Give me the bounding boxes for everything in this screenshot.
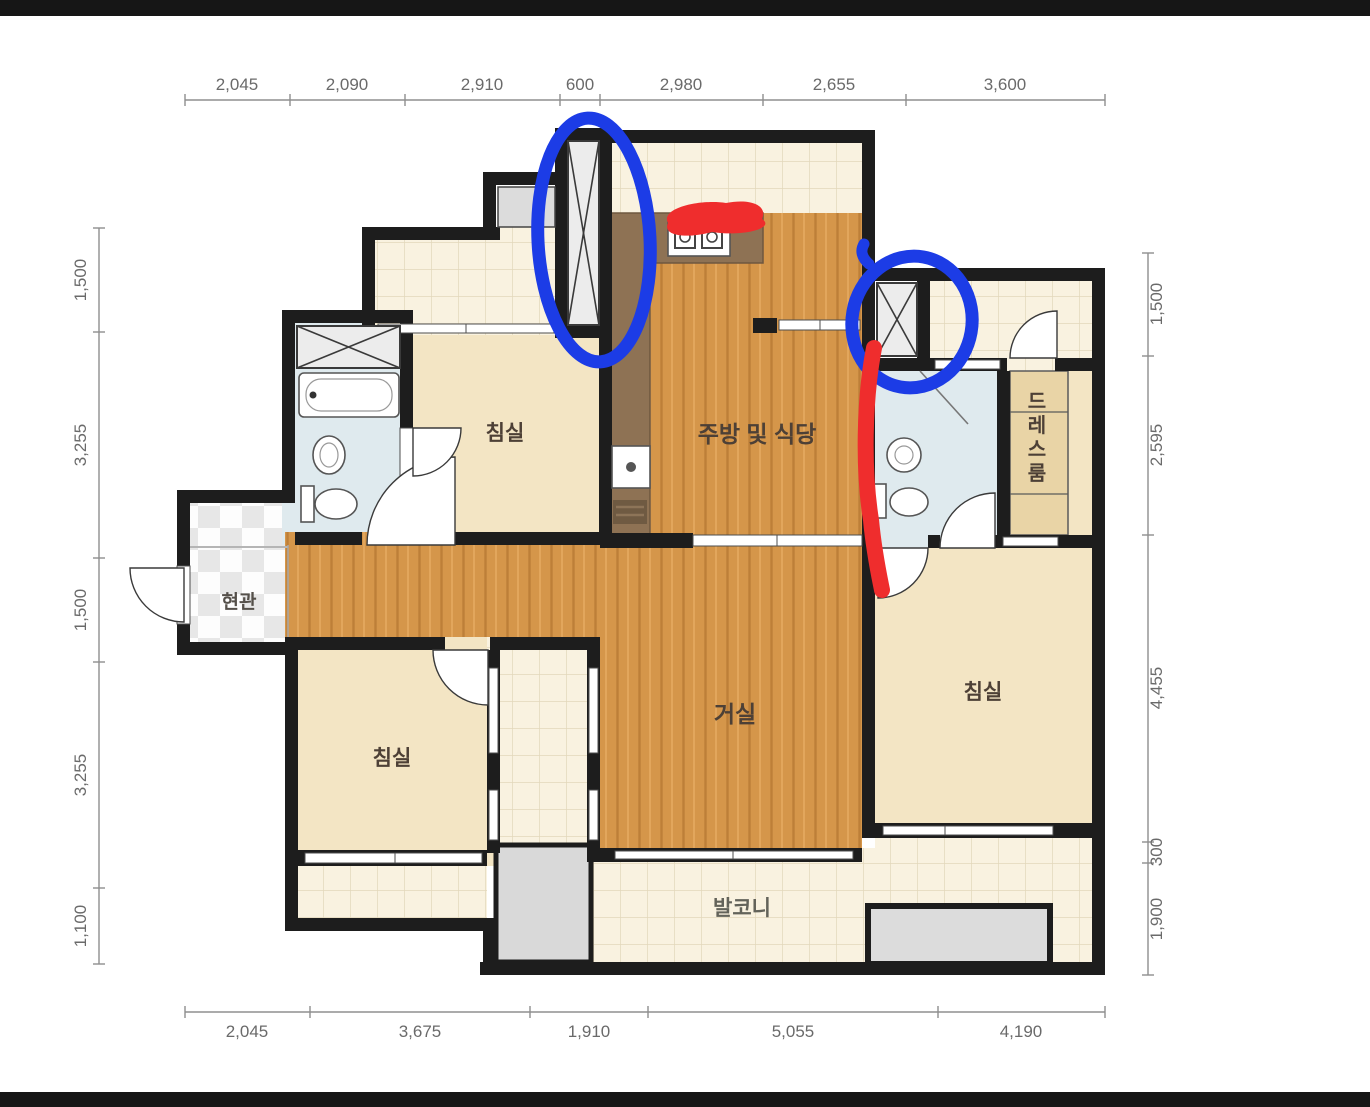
bedroom3-label: 침실: [373, 747, 412, 770]
dim-left-3: 1,500: [71, 589, 90, 632]
bedroom2-label: 침실: [964, 681, 1003, 704]
living-room-floor: [587, 532, 862, 862]
dim-top-3: 2,910: [461, 75, 504, 94]
top-black-bar: [0, 0, 1370, 16]
floor-plan: 침실 침실 침실 거실 주방 및 식당 발코니 현관 드레스룸 2,045 2,…: [0, 0, 1370, 1107]
duct-shaft-top-icon: [568, 141, 599, 325]
dim-top-7: 3,600: [984, 75, 1027, 94]
floor-plan-page: 침실 침실 침실 거실 주방 및 식당 발코니 현관 드레스룸 2,045 2,…: [0, 0, 1370, 1107]
hallway-floor: [285, 532, 600, 655]
bathtub-icon: [299, 373, 399, 417]
toilet1-icon: [301, 486, 357, 522]
dim-bottom-4: 5,055: [772, 1022, 815, 1041]
tile-strip-floor: [487, 637, 600, 853]
bottom-black-bar: [0, 1092, 1370, 1107]
dim-top-5: 2,980: [660, 75, 703, 94]
dim-left-1: 1,500: [71, 259, 90, 302]
dim-bottom-3: 1,910: [568, 1022, 611, 1041]
dim-right-4: 300: [1147, 838, 1166, 866]
sink1-icon: [313, 436, 345, 474]
dim-top-4: 600: [566, 75, 594, 94]
sink2-icon: [887, 438, 921, 472]
dim-left-2: 3,255: [71, 424, 90, 467]
gray-unit-left: [496, 845, 591, 962]
dim-right-1: 1,500: [1147, 283, 1166, 326]
dim-bottom-5: 4,190: [1000, 1022, 1043, 1041]
dim-right-3: 4,455: [1147, 667, 1166, 710]
dim-bottom-1: 2,045: [226, 1022, 269, 1041]
kitchen-label: 주방 및 식당: [698, 421, 817, 447]
dim-top-2: 2,090: [326, 75, 369, 94]
living-room-label: 거실: [714, 701, 756, 727]
balcony-label: 발코니: [713, 897, 771, 920]
duct-shaft-right-icon: [877, 283, 917, 356]
entrance-label: 현관: [222, 591, 257, 613]
dim-top-6: 2,655: [813, 75, 856, 94]
dim-right-2: 2,595: [1147, 424, 1166, 467]
dim-left-4: 3,255: [71, 754, 90, 797]
dim-left-5: 1,100: [71, 905, 90, 948]
duct-shaft-bathroom1-icon: [297, 326, 400, 368]
blue-annotation-tail: [862, 244, 869, 264]
kitchen-vent-icon: [613, 500, 647, 524]
ac-unit-platform: [868, 906, 1050, 964]
bedroom1-label: 침실: [486, 422, 525, 445]
dim-right-5: 1,900: [1147, 898, 1166, 941]
dim-top-1: 2,045: [216, 75, 259, 94]
kitchen-sink-icon: [612, 446, 650, 488]
entrance-floor: [177, 490, 298, 655]
dim-bottom-2: 3,675: [399, 1022, 442, 1041]
